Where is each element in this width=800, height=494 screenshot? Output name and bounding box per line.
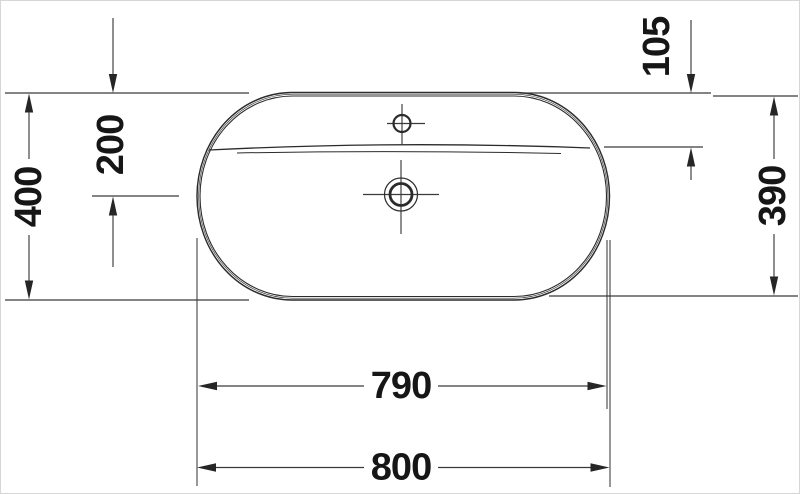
faucet-hole-icon <box>387 104 425 145</box>
drain-icon <box>363 160 439 234</box>
arrowhead-left-icon <box>198 382 217 390</box>
arrowhead-up-icon <box>770 97 778 116</box>
basin-ledge-edge <box>209 145 590 150</box>
arrowhead-right-icon <box>588 382 607 390</box>
dimension-label-790: 790 <box>371 365 431 407</box>
arrowhead-up-icon <box>25 94 33 113</box>
arrowhead-down-icon <box>25 281 33 300</box>
dimension-label-800: 800 <box>371 447 431 489</box>
dimension-ledge-depth: 105 <box>636 16 695 180</box>
basin-inner-rim-edge <box>200 96 607 297</box>
dimension-width-overall: 800 <box>197 447 610 489</box>
arrowhead-up-icon <box>109 197 117 216</box>
dimension-label-200: 200 <box>90 115 132 175</box>
dimension-depth-inner: 390 <box>752 97 794 296</box>
basin-ledge-lower-edge <box>237 152 561 154</box>
arrowhead-down-icon <box>687 74 695 93</box>
dimension-label-400: 400 <box>8 167 50 227</box>
arrowhead-right-icon <box>591 463 610 471</box>
drawing-sheet: 400 200 105 390 <box>0 0 800 494</box>
dimension-label-390: 390 <box>752 166 794 226</box>
washbasin-dimension-drawing: 400 200 105 390 <box>1 1 800 494</box>
dimension-drain-from-back: 200 <box>90 18 132 267</box>
basin-rim-mid-edge <box>199 94 608 298</box>
arrowhead-up-icon <box>687 148 695 167</box>
dimension-depth-overall: 400 <box>8 94 50 300</box>
arrowhead-down-icon <box>109 74 117 93</box>
dimension-label-105: 105 <box>636 16 678 77</box>
arrowhead-down-icon <box>770 277 778 296</box>
dimension-width-inner: 790 <box>198 365 607 407</box>
arrowhead-left-icon <box>197 463 216 471</box>
